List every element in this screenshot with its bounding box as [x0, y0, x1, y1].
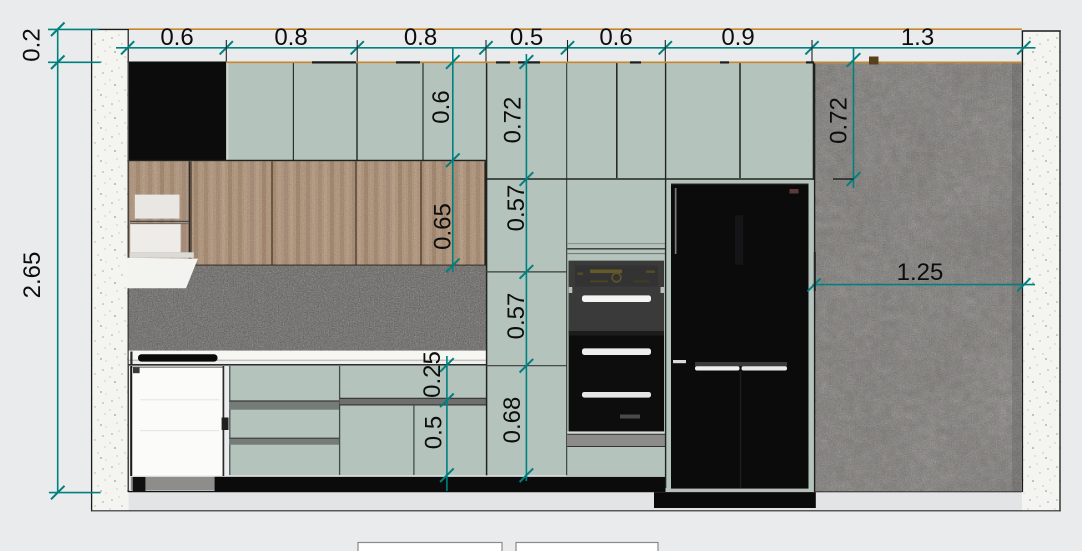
- svg-text:1.25: 1.25: [897, 259, 944, 286]
- svg-text:0.8: 0.8: [274, 24, 307, 51]
- svg-text:0.6: 0.6: [599, 24, 632, 51]
- svg-text:1.3: 1.3: [901, 24, 934, 51]
- svg-text:0.5: 0.5: [510, 24, 543, 51]
- svg-text:0.57: 0.57: [503, 185, 530, 232]
- svg-text:2.65: 2.65: [19, 252, 46, 299]
- svg-text:0.2: 0.2: [19, 28, 46, 61]
- svg-text:0.72: 0.72: [826, 97, 853, 144]
- svg-text:0.65: 0.65: [430, 203, 457, 250]
- svg-text:0.5: 0.5: [421, 416, 448, 449]
- svg-text:0.72: 0.72: [500, 97, 527, 144]
- svg-text:0.57: 0.57: [503, 293, 530, 340]
- svg-text:0.6: 0.6: [428, 90, 455, 123]
- svg-text:0.68: 0.68: [499, 397, 526, 444]
- svg-text:0.6: 0.6: [160, 24, 193, 51]
- svg-text:0.8: 0.8: [404, 24, 437, 51]
- svg-text:0.25: 0.25: [419, 351, 446, 398]
- svg-text:0.9: 0.9: [721, 24, 754, 51]
